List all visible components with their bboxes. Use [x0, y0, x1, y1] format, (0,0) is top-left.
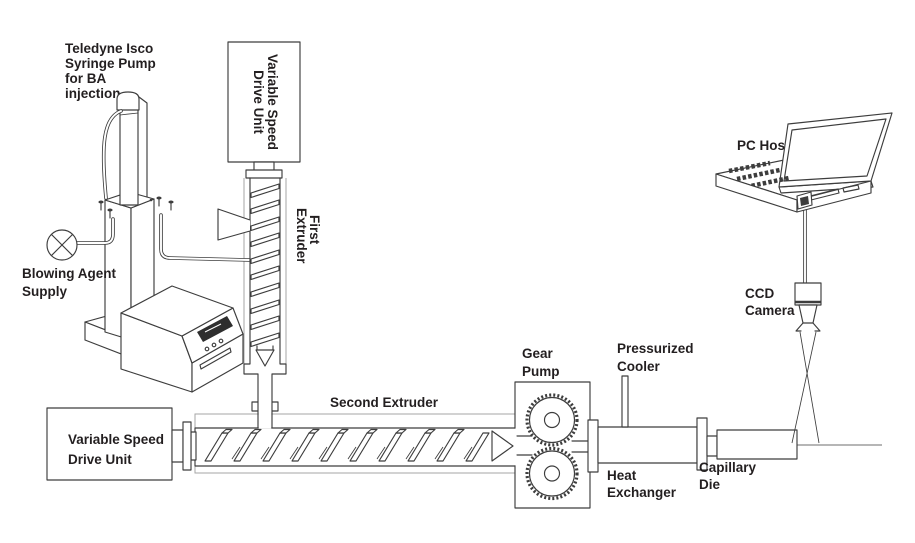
syringe-pump-station: Teledyne Isco Syringe Pump for BA inject…	[65, 41, 243, 392]
vsd-second-label: Drive Unit	[68, 452, 132, 467]
screw-flight	[251, 283, 279, 297]
screw-flight	[251, 266, 279, 280]
syringe-cylinder	[104, 92, 147, 205]
gear-hub	[545, 466, 560, 481]
die-body	[717, 430, 797, 459]
screw-tip	[256, 350, 274, 366]
syringe-pump-label: Syringe Pump	[65, 56, 156, 71]
gear-bottom	[526, 447, 579, 500]
first-extruder-label: Extruder	[294, 208, 309, 264]
pc-host-label: PC Host	[737, 138, 790, 153]
heat-exchanger-body	[598, 427, 697, 463]
screw-flight	[251, 333, 279, 347]
syringe-pump-label: injection	[65, 86, 121, 101]
drive-shaft	[172, 430, 183, 462]
second-extruder-label: Second Extruder	[330, 395, 439, 410]
capillary-die-label: Die	[699, 477, 721, 492]
screw-shaft	[257, 346, 273, 350]
gear-top	[526, 394, 579, 447]
loop-tube	[104, 111, 121, 198]
lens-flare	[796, 323, 820, 331]
pressurized-cooler: Pressurized Cooler	[617, 341, 694, 427]
camera-lens	[799, 305, 817, 323]
blowing-agent-supply: Blowing Agent Supply	[22, 219, 116, 299]
feed-hopper	[218, 209, 250, 240]
heat-exchanger-label: Heat	[607, 468, 637, 483]
vsd-second-label: Variable Speed	[68, 432, 164, 447]
bolt-dot	[150, 199, 153, 202]
gear-hub	[545, 413, 560, 428]
flange	[588, 420, 598, 472]
heat-exchanger-label: Exchanger	[607, 485, 677, 500]
vsd-first-label: Drive Unit	[251, 70, 266, 134]
screw-flight	[251, 233, 279, 247]
view-cone	[792, 332, 819, 443]
screw-flight	[251, 316, 279, 330]
blowing-agent-label: Supply	[22, 284, 67, 299]
die-adapter	[707, 436, 717, 456]
screw-flight	[251, 200, 279, 214]
pressurized-cooler-label: Pressurized	[617, 341, 694, 356]
vsd-first-label: Variable Speed	[265, 54, 280, 150]
screw-flight	[251, 184, 279, 198]
capillary-die-label: Capillary	[699, 460, 757, 475]
valve	[168, 201, 173, 211]
syringe-barrel	[120, 108, 138, 205]
syringe-cap	[117, 92, 139, 110]
screw-flights	[251, 184, 279, 347]
cooler-pipe	[622, 376, 628, 427]
extrusion-line-schematic: Second Extruder Variable Speed Drive Uni…	[0, 0, 915, 543]
valve	[156, 197, 161, 207]
screw-flight	[251, 250, 279, 264]
ccd-camera-label: Camera	[745, 303, 795, 318]
laptop-lid	[779, 113, 892, 187]
screw-flight	[251, 217, 279, 231]
pc-host: PC Host	[716, 113, 892, 212]
pressurized-cooler-label: Cooler	[617, 359, 661, 374]
diagram-canvas: Second Extruder Variable Speed Drive Uni…	[0, 0, 915, 543]
shaft-stub	[191, 432, 196, 460]
valve	[98, 201, 103, 211]
shaft-flange	[246, 170, 282, 178]
shaft-flange	[183, 422, 191, 470]
heat-exchanger: Heat Exchanger	[588, 418, 707, 500]
frame-rod	[139, 97, 147, 197]
gear-pump-label: Pump	[522, 364, 560, 379]
melt-channel	[259, 374, 272, 429]
ccd-camera-label: CCD	[745, 286, 774, 301]
second-extruder-assembly: Second Extruder Variable Speed Drive Uni…	[47, 382, 590, 508]
gear-pump-label: Gear	[522, 346, 554, 361]
capillary-die: Capillary Die	[699, 430, 797, 492]
blowing-agent-label: Blowing Agent	[22, 266, 116, 281]
syringe-pump-label: Teledyne Isco	[65, 41, 153, 56]
screw-flight	[251, 300, 279, 314]
ccd-camera: CCD Camera	[745, 208, 821, 443]
syringe-pump-label: for BA	[65, 71, 106, 86]
